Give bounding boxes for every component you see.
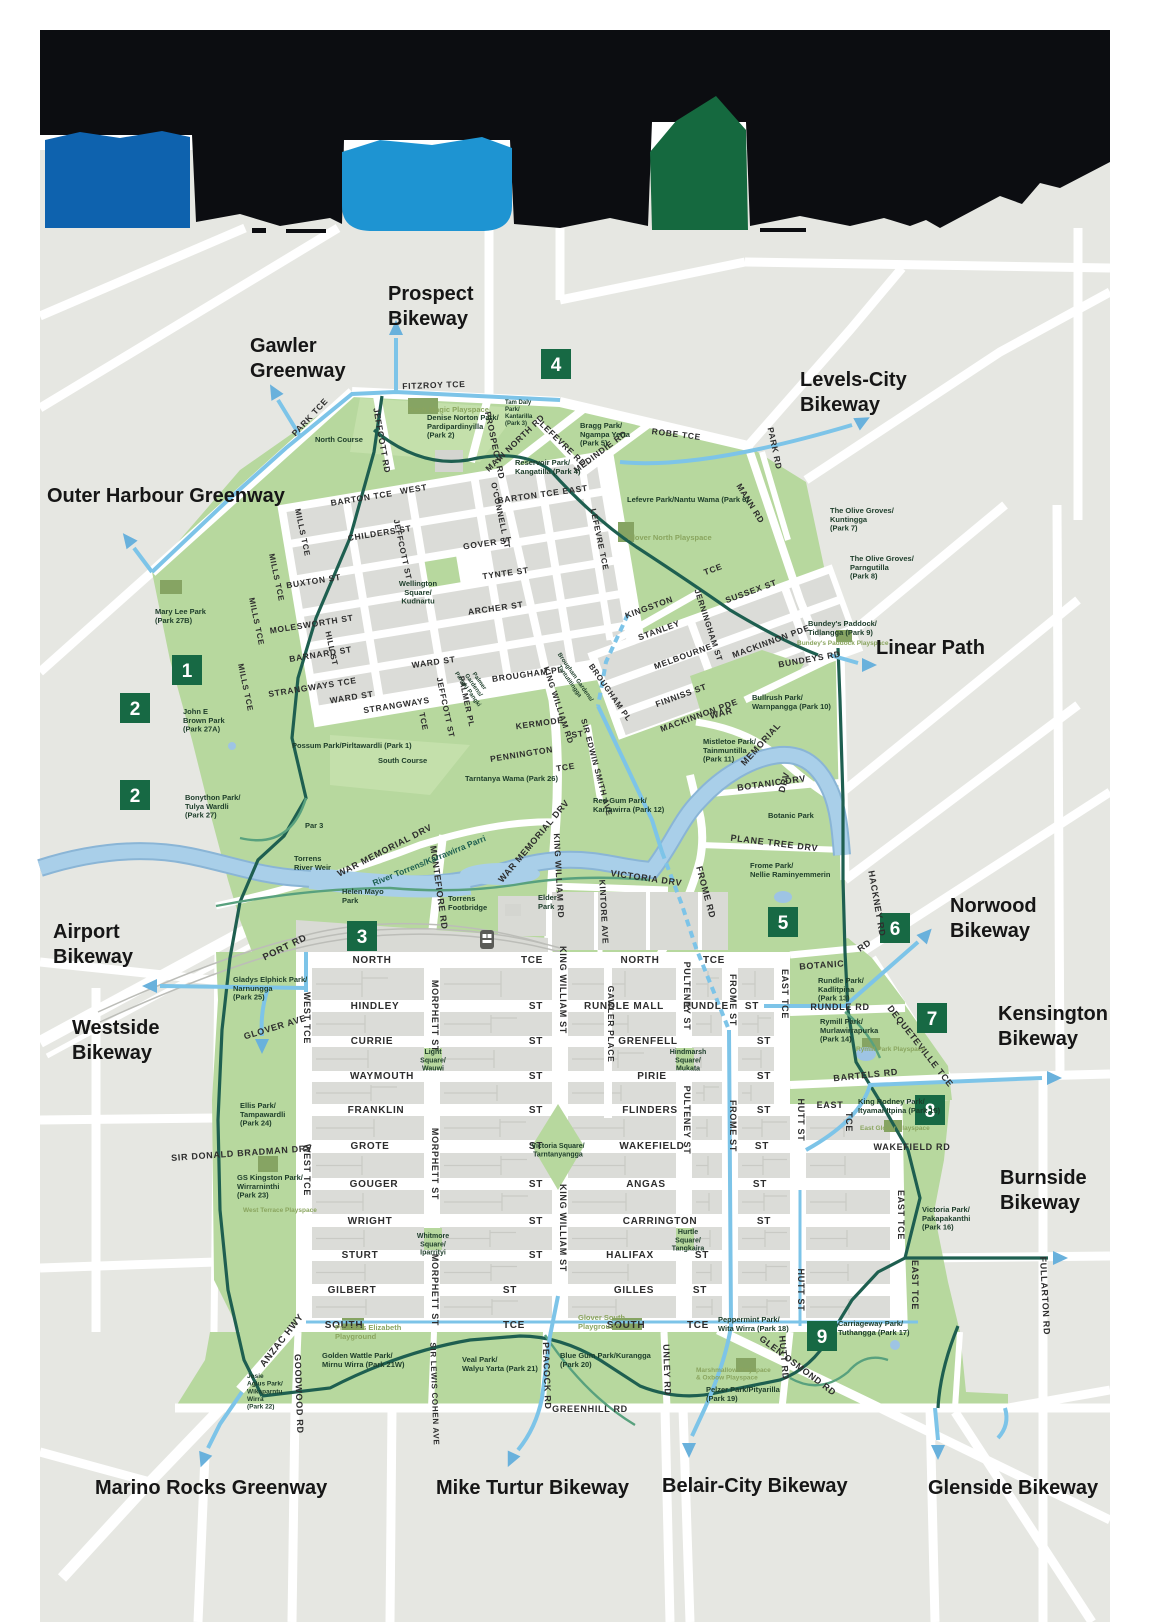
park-label: Carriageway Park/Tuthangga (Park 17)	[838, 1319, 910, 1337]
street-label: GROTE	[350, 1141, 389, 1152]
park-marker-number: 1	[182, 661, 193, 682]
park-marker-number: 9	[817, 1327, 828, 1348]
park-marker-number: 5	[778, 913, 789, 934]
park-label: Golden Wattle Park/Mirnu Wirra (Park 21W…	[322, 1351, 405, 1369]
street-label: TCE	[844, 1112, 854, 1132]
playspace-label: Bush Magic Playspace	[408, 405, 489, 414]
playspace-label: Glover SouthPlayground	[578, 1313, 626, 1331]
bikeway-label: Glenside Bikeway	[928, 1477, 1099, 1499]
park-label: Possum Park/Pirltawardli (Park 1)	[292, 741, 412, 750]
street-label: ST	[529, 1036, 543, 1047]
park-label: Botanic Park	[768, 811, 815, 820]
street-label: ST	[529, 1250, 543, 1261]
street-label: GREENHILL RD	[552, 1404, 628, 1414]
street-label: ST	[693, 1285, 707, 1296]
street-label: PULTENEY ST	[682, 962, 692, 1031]
bikeway-label: Belair-City Bikeway	[662, 1475, 849, 1497]
park-marker-number: 2	[130, 699, 141, 720]
street-label: HUTT ST	[796, 1269, 806, 1312]
street-label: ST	[755, 1141, 769, 1152]
street-label: ST	[757, 1105, 771, 1116]
street-label: GILBERT	[328, 1285, 377, 1296]
street-label: KING WILLIAM ST	[558, 1184, 568, 1272]
park-marker-number: 2	[130, 786, 141, 807]
legend-swatch-dark-blue	[45, 131, 190, 228]
park-marker-9: 9	[807, 1321, 837, 1351]
street-label: EAST TCE	[780, 969, 790, 1019]
park-marker-5: 5	[768, 907, 798, 937]
street-label: ST	[745, 1001, 759, 1012]
park-marker-number: 6	[890, 919, 901, 940]
park-label: North Course	[315, 435, 363, 444]
playspace-label: East Glover Playspace	[860, 1125, 930, 1132]
park-label: Tarntanya Wama (Park 26)	[465, 774, 558, 783]
park-marker-1: 1	[172, 655, 202, 685]
park-marker-2: 2	[120, 693, 150, 723]
street-label: GILLES	[614, 1285, 654, 1296]
street-label: KING WILLIAM ST	[558, 946, 568, 1034]
street-label: ST	[529, 1071, 543, 1082]
street-label: HUTT ST	[796, 1099, 806, 1142]
street-label: NORTH	[352, 955, 391, 966]
street-label: EAST	[817, 1100, 844, 1110]
adelaide-bikeways-map: 1223456789 NORTHTCENORTHTCEHINDLEYSTRUND…	[0, 0, 1167, 1622]
street-label: TCE	[703, 955, 725, 966]
street-label: TCE	[521, 955, 543, 966]
street-label: MORPHETT ST	[430, 1128, 440, 1200]
street-label: HINDLEY	[351, 1001, 400, 1012]
street-label: GAWLER PLACE	[606, 986, 616, 1063]
street-label: FROME ST	[728, 974, 738, 1026]
header-redaction	[40, 30, 1110, 233]
park-label: South Course	[378, 756, 427, 765]
park-marker-number: 4	[551, 355, 562, 376]
street-label: ST	[529, 1179, 543, 1190]
park-marker-7: 7	[917, 1003, 947, 1033]
street-label: PULTENEY ST	[682, 1086, 692, 1155]
park-label: Lefevre Park/Nantu Wama (Park 6)	[627, 495, 749, 504]
street-label: ST	[529, 1105, 543, 1116]
street-label: ST	[529, 1216, 543, 1227]
street-label: GOUGER	[350, 1179, 399, 1190]
street-label: UNLEY RD	[661, 1344, 673, 1396]
street-label: WRIGHT	[348, 1216, 393, 1227]
park-label: Victoria Square/Tarntanyangga	[531, 1143, 584, 1158]
street-label: WAKEFIELD RD	[874, 1142, 951, 1152]
street-label: HALIFAX	[606, 1250, 654, 1261]
street-label: WAYMOUTH	[350, 1071, 414, 1082]
street-label: FLINDERS	[622, 1105, 678, 1116]
legend-swatch-light-blue	[342, 137, 512, 231]
street-label: STURT	[342, 1250, 379, 1261]
park-label: ElderPark	[538, 893, 557, 911]
street-label: ST	[753, 1179, 767, 1190]
park-marker-4: 4	[541, 349, 571, 379]
bikeway-map-page: 1223456789 NORTHTCENORTHTCEHINDLEYSTRUND…	[0, 0, 1167, 1622]
bikeway-label: Mike Turtur Bikeway	[436, 1477, 630, 1499]
street-label: FROME ST	[728, 1100, 738, 1152]
street-label: WAKEFIELD	[619, 1141, 684, 1152]
street-label: ST	[757, 1036, 771, 1047]
street-label: ST	[757, 1071, 771, 1082]
street-label: TCE	[503, 1320, 525, 1331]
street-label: EAST TCE	[896, 1190, 906, 1240]
playspace-label: Glover North Playspace	[627, 533, 712, 542]
park-label: WhitmoreSquare/Iparrityi	[417, 1233, 449, 1257]
playspace-label: West Terrace Playspace	[243, 1207, 317, 1214]
street-label: MORPHETT ST	[430, 1254, 440, 1326]
park-marker-3: 3	[347, 921, 377, 951]
street-label: GRENFELL	[618, 1036, 678, 1047]
street-label: NORTH	[620, 955, 659, 966]
park-marker-number: 7	[927, 1009, 938, 1030]
street-label: ST	[757, 1216, 771, 1227]
train-station-icon	[480, 930, 494, 949]
street-label: CURRIE	[351, 1036, 394, 1047]
bikeway-label: Outer Harbour Greenway	[47, 485, 286, 507]
street-label: MORPHETT ST	[430, 980, 440, 1052]
street-label: EAST TCE	[910, 1260, 920, 1310]
street-label: FRANKLIN	[348, 1105, 405, 1116]
street-label: PIRIE	[637, 1071, 667, 1082]
street-label: RUNDLE MALL	[584, 1001, 664, 1012]
bikeway-label: Linear Path	[876, 637, 985, 659]
street-label: TCE	[687, 1320, 709, 1331]
park-label: Par 3	[305, 821, 323, 830]
street-label: ANGAS	[626, 1179, 666, 1190]
street-label: ST	[529, 1001, 543, 1012]
street-label: CARRINGTON	[623, 1216, 698, 1227]
park-label: WellingtonSquare/Kudnartu	[399, 579, 438, 606]
bikeway-label: Marino Rocks Greenway	[95, 1477, 328, 1499]
park-label: Bundey's Paddock/Tidlangga (Park 9)	[808, 619, 878, 637]
park-marker-2: 2	[120, 780, 150, 810]
street-label: ST	[503, 1285, 517, 1296]
park-label: Peppermint Park/Wita Wirra (Park 18)	[718, 1315, 789, 1333]
park-marker-number: 3	[357, 927, 368, 948]
playspace-label: Rymill Park Playspace	[856, 1046, 925, 1053]
street-label: RUNDLE RD	[810, 1002, 869, 1012]
